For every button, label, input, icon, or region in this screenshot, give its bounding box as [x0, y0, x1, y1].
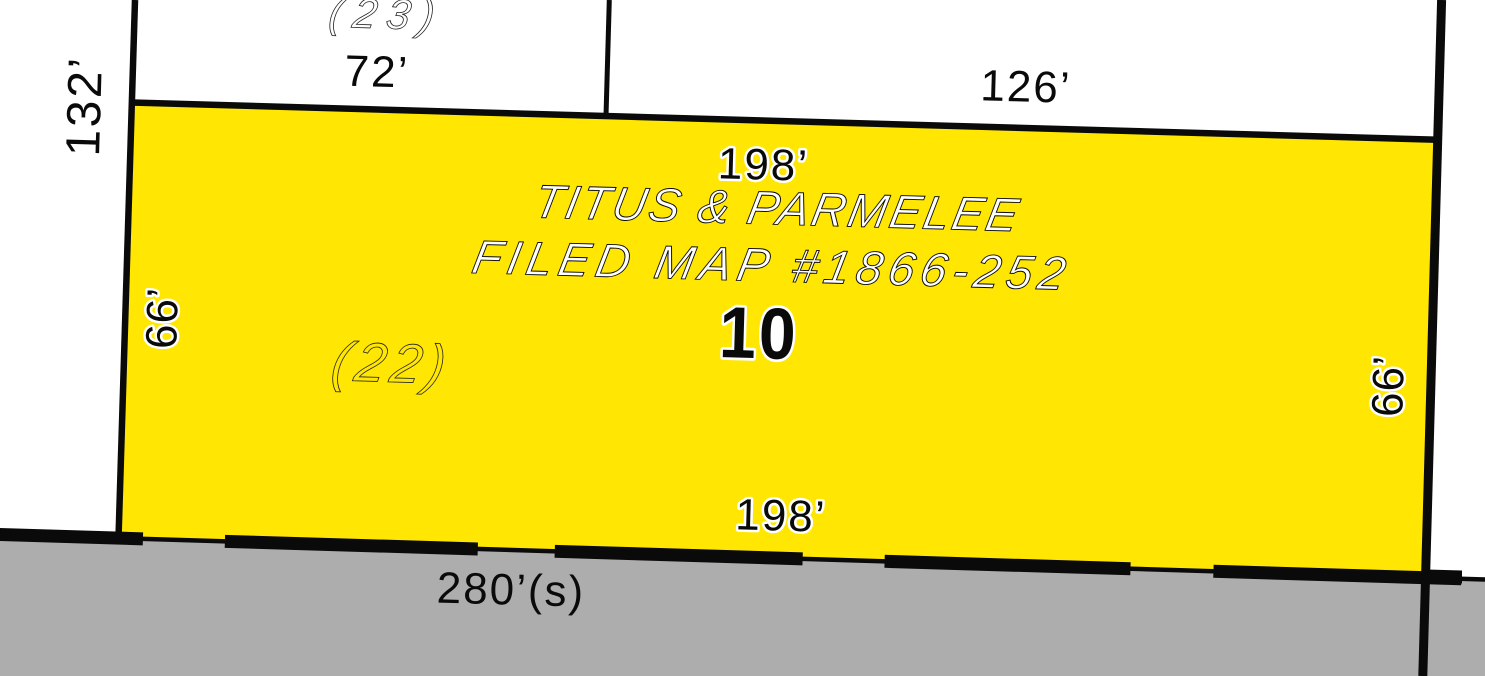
svg-text:66’: 66’	[1363, 354, 1414, 417]
svg-text:126’: 126’	[980, 61, 1073, 113]
svg-text:(22): (22)	[327, 331, 455, 396]
svg-text:72’: 72’	[344, 47, 410, 98]
svg-text:132’: 132’	[57, 55, 113, 157]
svg-text:280’(s): 280’(s)	[436, 563, 586, 616]
svg-text:66’: 66’	[137, 286, 188, 349]
svg-text:(23): (23)	[326, 0, 449, 39]
svg-text:10: 10	[718, 291, 800, 375]
svg-text:198’: 198’	[735, 490, 828, 542]
